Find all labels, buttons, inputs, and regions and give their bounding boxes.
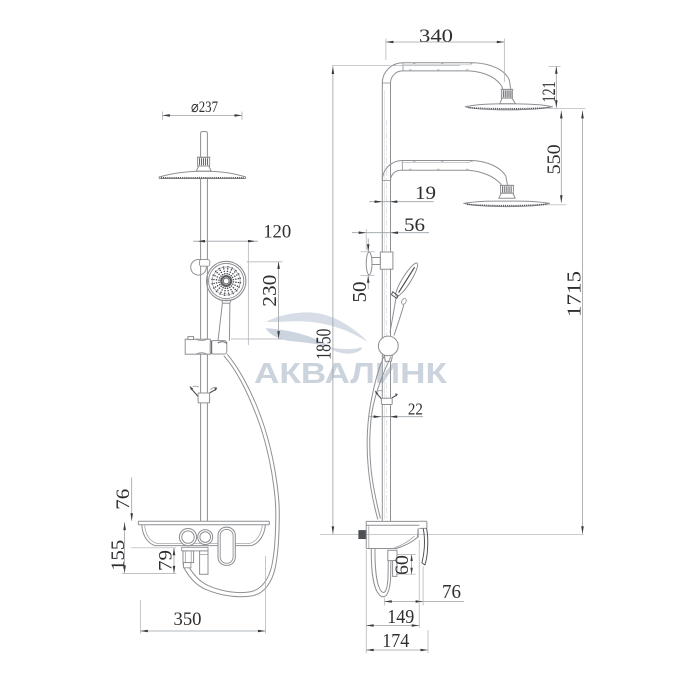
svg-text:155: 155 <box>108 540 129 571</box>
svg-text:550: 550 <box>544 144 565 174</box>
svg-text:121: 121 <box>539 81 560 102</box>
svg-text:230: 230 <box>259 275 281 307</box>
svg-text:1850: 1850 <box>311 329 335 360</box>
svg-text:19: 19 <box>415 183 436 204</box>
svg-text:350: 350 <box>174 609 202 630</box>
svg-text:76: 76 <box>113 489 134 510</box>
svg-text:149: 149 <box>387 606 414 628</box>
svg-text:340: 340 <box>419 26 453 47</box>
svg-text:22: 22 <box>408 399 423 418</box>
svg-text:50: 50 <box>349 282 371 303</box>
svg-text:АКВАЛИНК: АКВАЛИНК <box>254 358 448 390</box>
svg-text:120: 120 <box>263 221 291 242</box>
svg-text:76: 76 <box>442 581 461 603</box>
svg-text:60: 60 <box>392 555 413 575</box>
svg-text:174: 174 <box>382 630 409 652</box>
svg-text:⌀237: ⌀237 <box>191 99 218 116</box>
